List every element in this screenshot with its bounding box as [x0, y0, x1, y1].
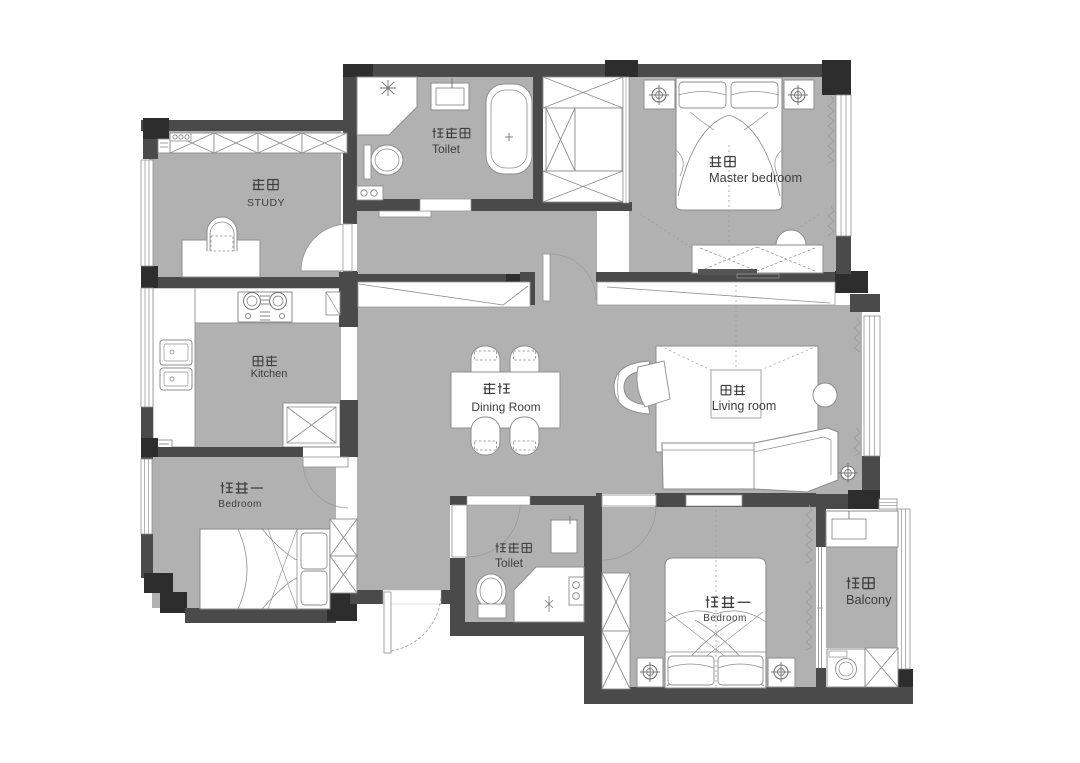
svg-text:STUDY: STUDY — [247, 197, 285, 209]
svg-text:Kitchen: Kitchen — [251, 368, 288, 380]
svg-text:Toilet: Toilet — [432, 142, 461, 156]
svg-text:Bedroom: Bedroom — [218, 499, 261, 510]
svg-text:Living room: Living room — [712, 399, 777, 413]
svg-text:Toilet: Toilet — [495, 556, 524, 570]
svg-text:Master bedroom: Master bedroom — [709, 170, 802, 185]
svg-text:Balcony: Balcony — [846, 592, 892, 607]
svg-text:Dining Room: Dining Room — [471, 400, 540, 414]
svg-text:Bedroom: Bedroom — [703, 613, 746, 624]
